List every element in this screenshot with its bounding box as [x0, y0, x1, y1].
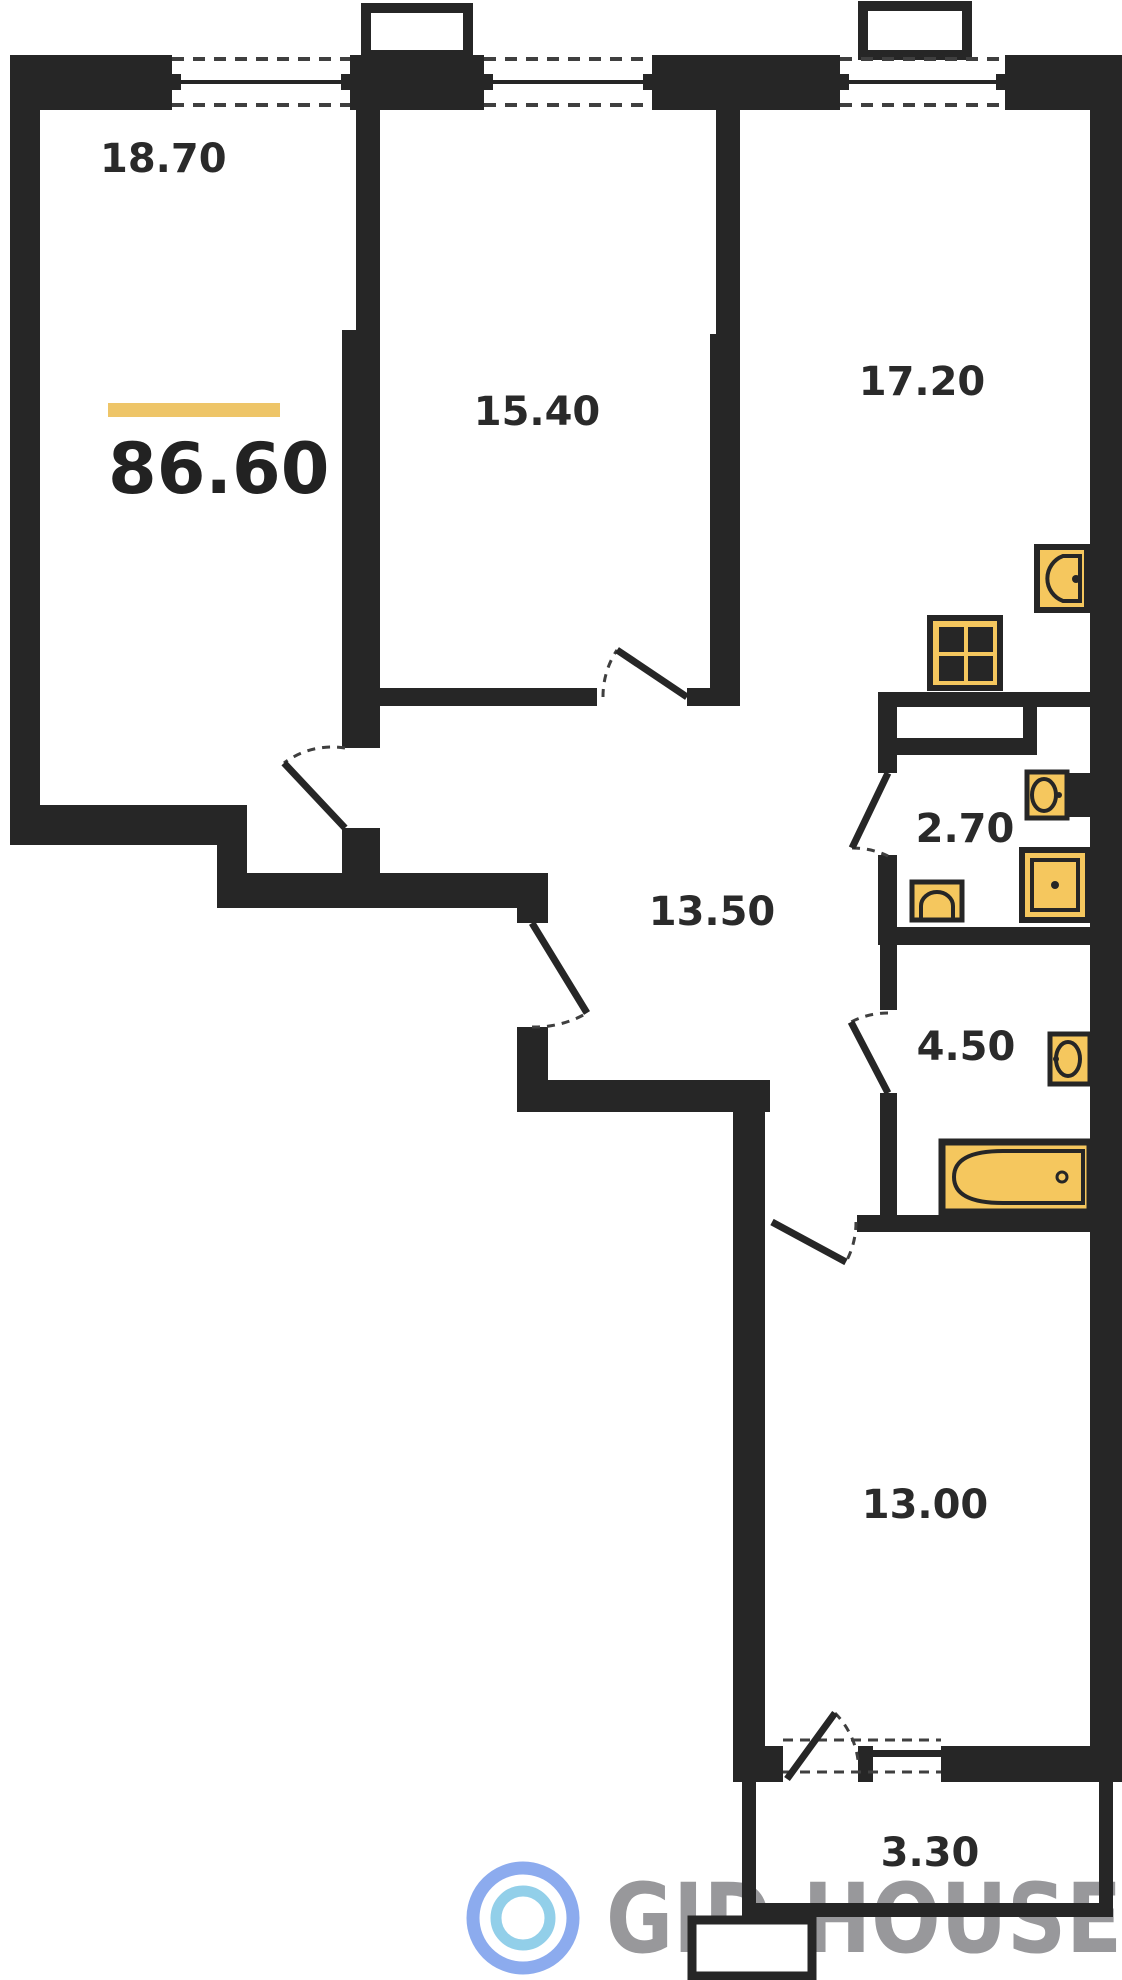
room-area-label-living-room: 18.70	[100, 136, 227, 182]
room-area-label-bathroom: 4.50	[917, 1024, 1016, 1070]
room-area-label-bedroom: 15.40	[474, 389, 601, 435]
watermark-text: GID.HOUSE	[606, 1863, 1122, 1975]
bathroom-sink-icon	[1050, 1034, 1090, 1084]
kitchen-sink-icon	[1037, 547, 1087, 610]
room-area-label-hallway: 13.50	[649, 889, 776, 935]
wc-sink-icon	[1027, 772, 1067, 818]
gid-house-logo-outer-ring-icon	[473, 1868, 573, 1968]
toilet-icon	[912, 882, 962, 920]
door-entrance	[532, 923, 587, 1027]
door-bathroom	[851, 1013, 888, 1093]
total-area-label: 86.60	[108, 428, 329, 510]
room-area-label-balcony: 3.30	[881, 1830, 980, 1876]
door-bedroom-2	[772, 1222, 856, 1262]
doors	[284, 650, 888, 1779]
room-area-label-wc: 2.70	[916, 806, 1015, 852]
total-area-block: 86.60	[108, 403, 329, 510]
facade-protrusion	[366, 8, 468, 55]
facade-protrusion	[863, 6, 967, 55]
window	[484, 59, 652, 105]
floor-plan-drawing: GID.HOUSE	[0, 0, 1122, 1980]
door-living-room	[284, 747, 345, 828]
window	[172, 59, 350, 105]
room-area-label-bedroom-2: 13.00	[862, 1482, 989, 1528]
stove-icon	[930, 618, 1000, 688]
door-bedroom	[603, 650, 687, 697]
accent-bar	[108, 403, 280, 417]
bathtub-icon	[942, 1142, 1090, 1212]
room-area-label-kitchen-living: 17.20	[859, 359, 986, 405]
door-wc	[852, 773, 888, 856]
door-balcony	[787, 1713, 858, 1779]
washing-machine-icon	[1022, 850, 1088, 920]
window	[840, 59, 1005, 105]
floor-plan-page: GID.HOUSE	[0, 0, 1122, 1980]
facade-protrusions	[366, 6, 967, 55]
balcony-pillar	[692, 1920, 812, 1976]
room-area-labels: 18.70 15.40 17.20 13.50 2.70 4.50 13.00 …	[100, 136, 1015, 1876]
fixtures	[912, 547, 1090, 1212]
gid-house-logo-inner-ring-icon	[496, 1891, 550, 1945]
